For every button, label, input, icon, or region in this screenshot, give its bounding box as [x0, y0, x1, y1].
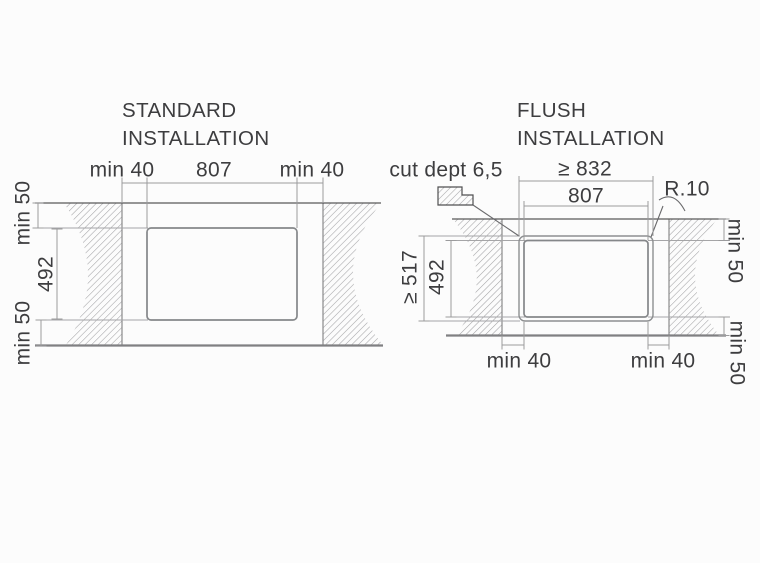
- dim-label-min50-right-top: min 50: [725, 219, 746, 284]
- corner-radius-label: R.10: [664, 179, 710, 200]
- flush-installation-title: FLUSH INSTALLATION: [517, 97, 665, 152]
- dim-label-min40-bottom-right: min 40: [631, 351, 696, 372]
- dim-label-min40-right: min 40: [280, 160, 345, 181]
- standard-cutout-rect: [147, 228, 297, 320]
- dim-label-492: 492: [36, 256, 57, 292]
- dim-label-807: 807: [196, 160, 232, 181]
- dim-label-min50-bottom: min 50: [13, 301, 34, 366]
- cut-depth-profile-icon: [438, 187, 473, 205]
- dim-label-492-flush: 492: [427, 259, 448, 295]
- standard-drawing: [33, 178, 384, 347]
- flush-worktop-hatch-right: [669, 219, 719, 335]
- dim-label-min50-right-bottom: min 50: [727, 321, 748, 386]
- standard-worktop-hatch-right: [323, 203, 383, 345]
- dim-label-min40-bottom-left: min 40: [487, 351, 552, 372]
- title-line: INSTALLATION: [517, 125, 665, 153]
- dim-label-807-flush: 807: [568, 186, 604, 207]
- dim-label-min50-top: min 50: [13, 181, 34, 246]
- dim-label-832: ≥ 832: [558, 159, 612, 180]
- flush-cutout-rect: [524, 241, 648, 318]
- technical-drawing: [0, 0, 760, 563]
- installation-diagram: STANDARD INSTALLATION FLUSH INSTALLATION…: [0, 0, 760, 563]
- title-line: INSTALLATION: [122, 125, 270, 153]
- flush-recess-rect: [519, 236, 653, 321]
- dim-label-517: ≥ 517: [400, 250, 421, 304]
- title-line: FLUSH: [517, 97, 665, 125]
- cut-depth-label: cut dept 6,5: [389, 160, 502, 181]
- title-line: STANDARD: [122, 97, 270, 125]
- dim-label-min40-left: min 40: [90, 160, 155, 181]
- standard-installation-title: STANDARD INSTALLATION: [122, 97, 270, 152]
- standard-worktop-hatch-left: [64, 203, 122, 345]
